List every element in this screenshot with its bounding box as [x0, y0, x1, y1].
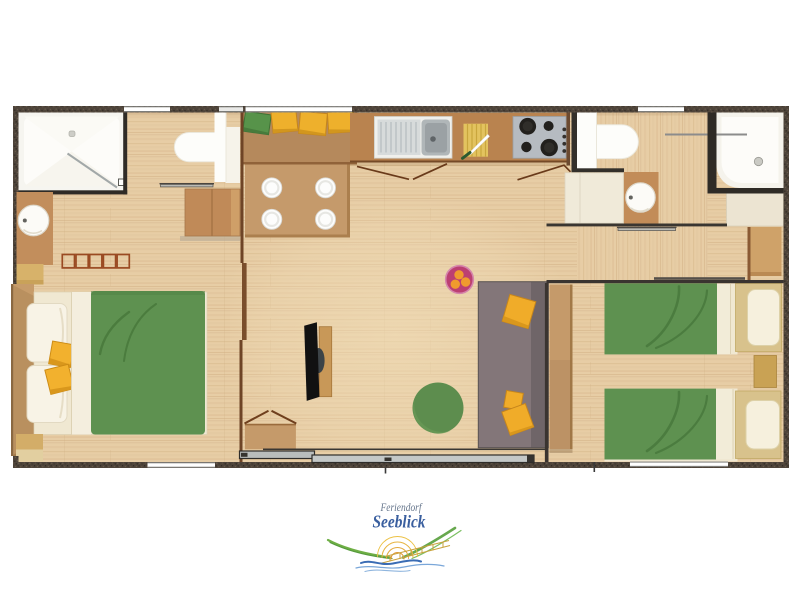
svg-text:Seeblick: Seeblick — [373, 512, 426, 532]
